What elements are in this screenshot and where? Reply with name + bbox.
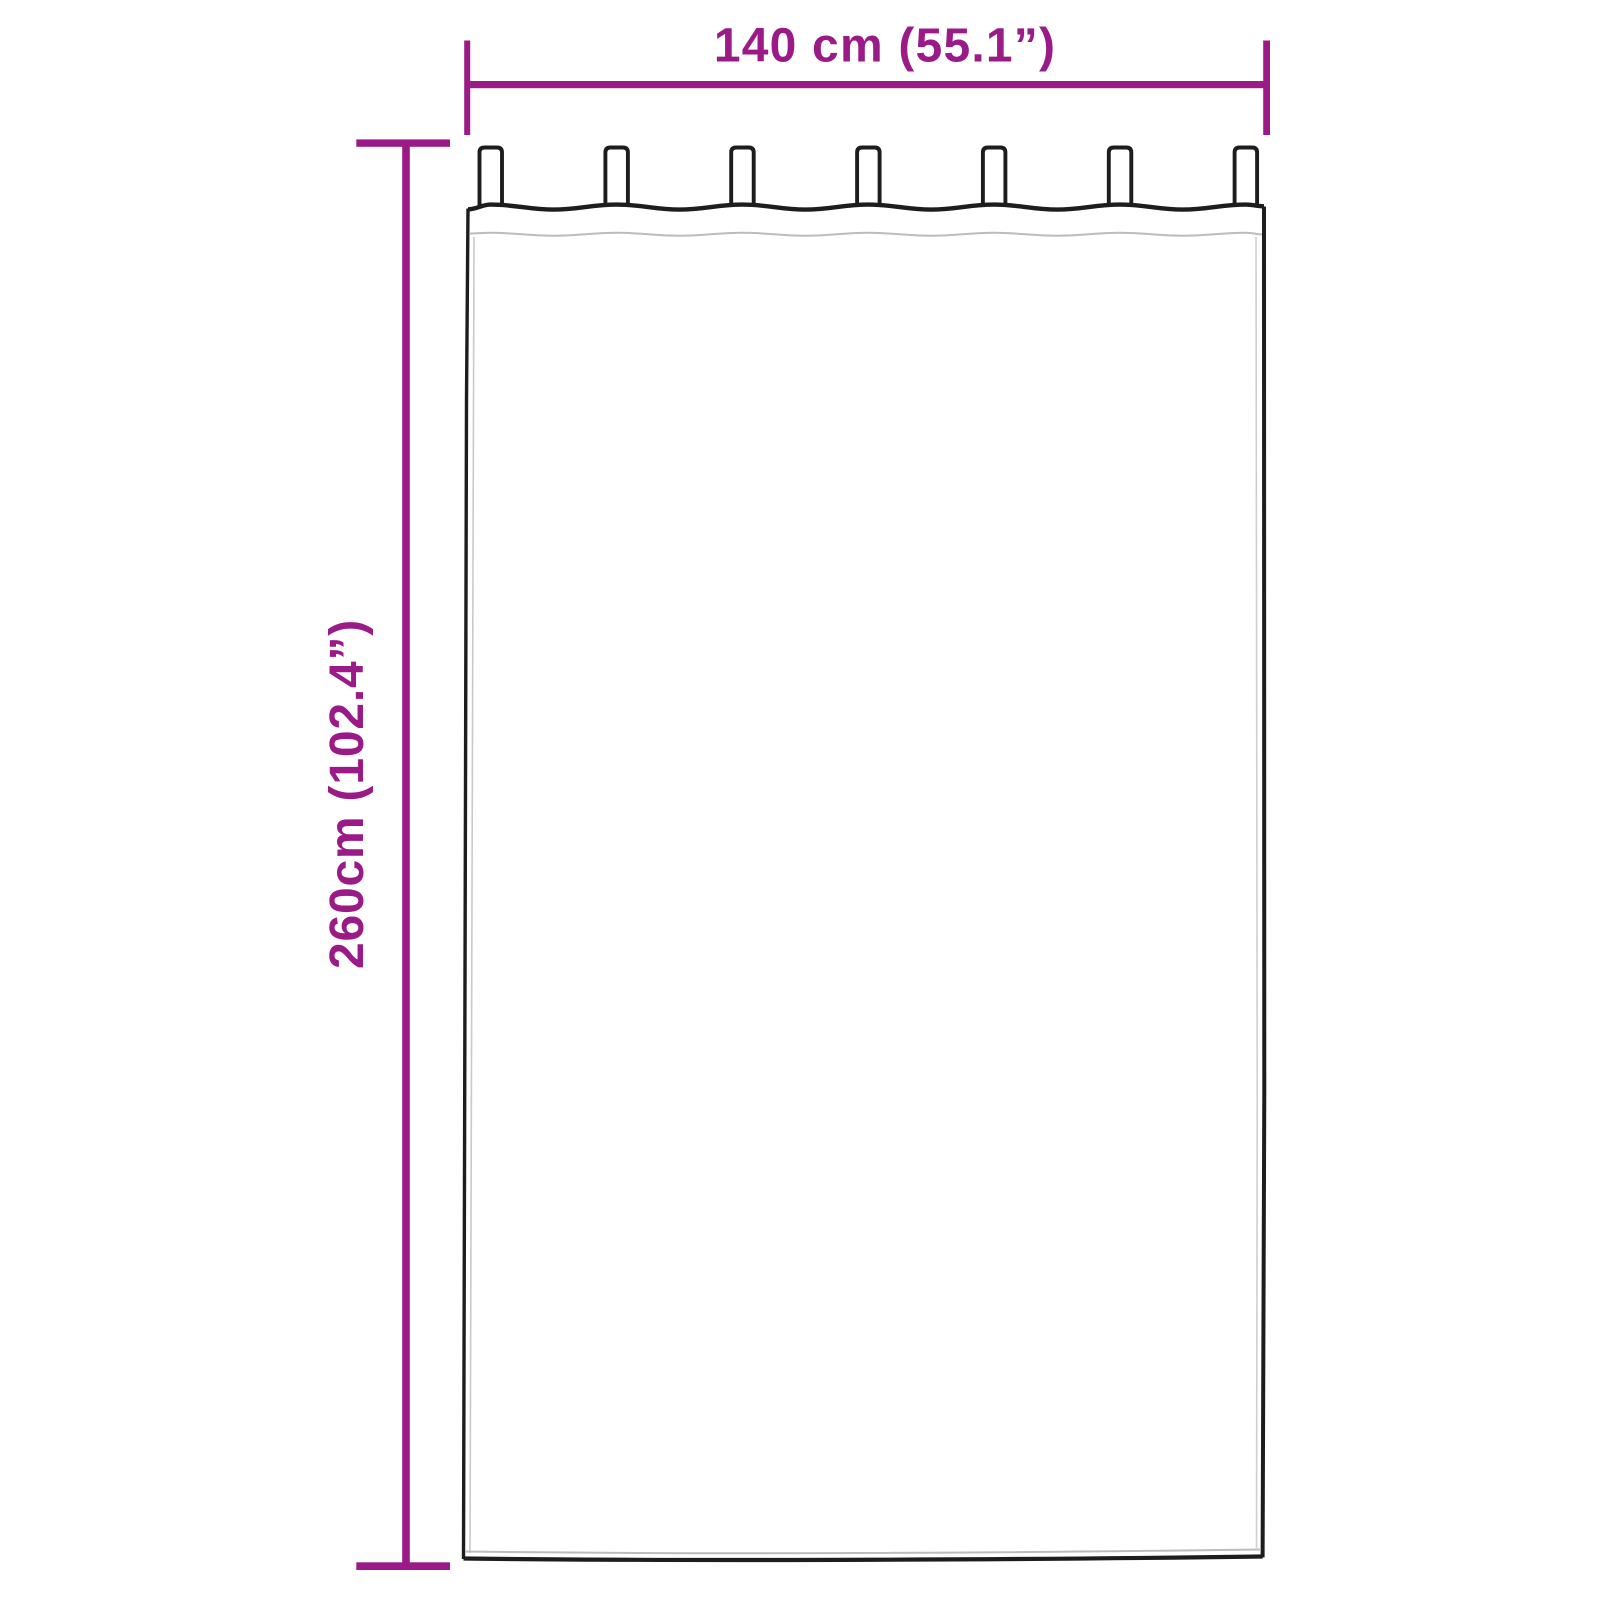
svg-text:260cm (102.4”): 260cm (102.4”) <box>321 619 374 969</box>
svg-text:140 cm (55.1”): 140 cm (55.1”) <box>714 20 1056 73</box>
